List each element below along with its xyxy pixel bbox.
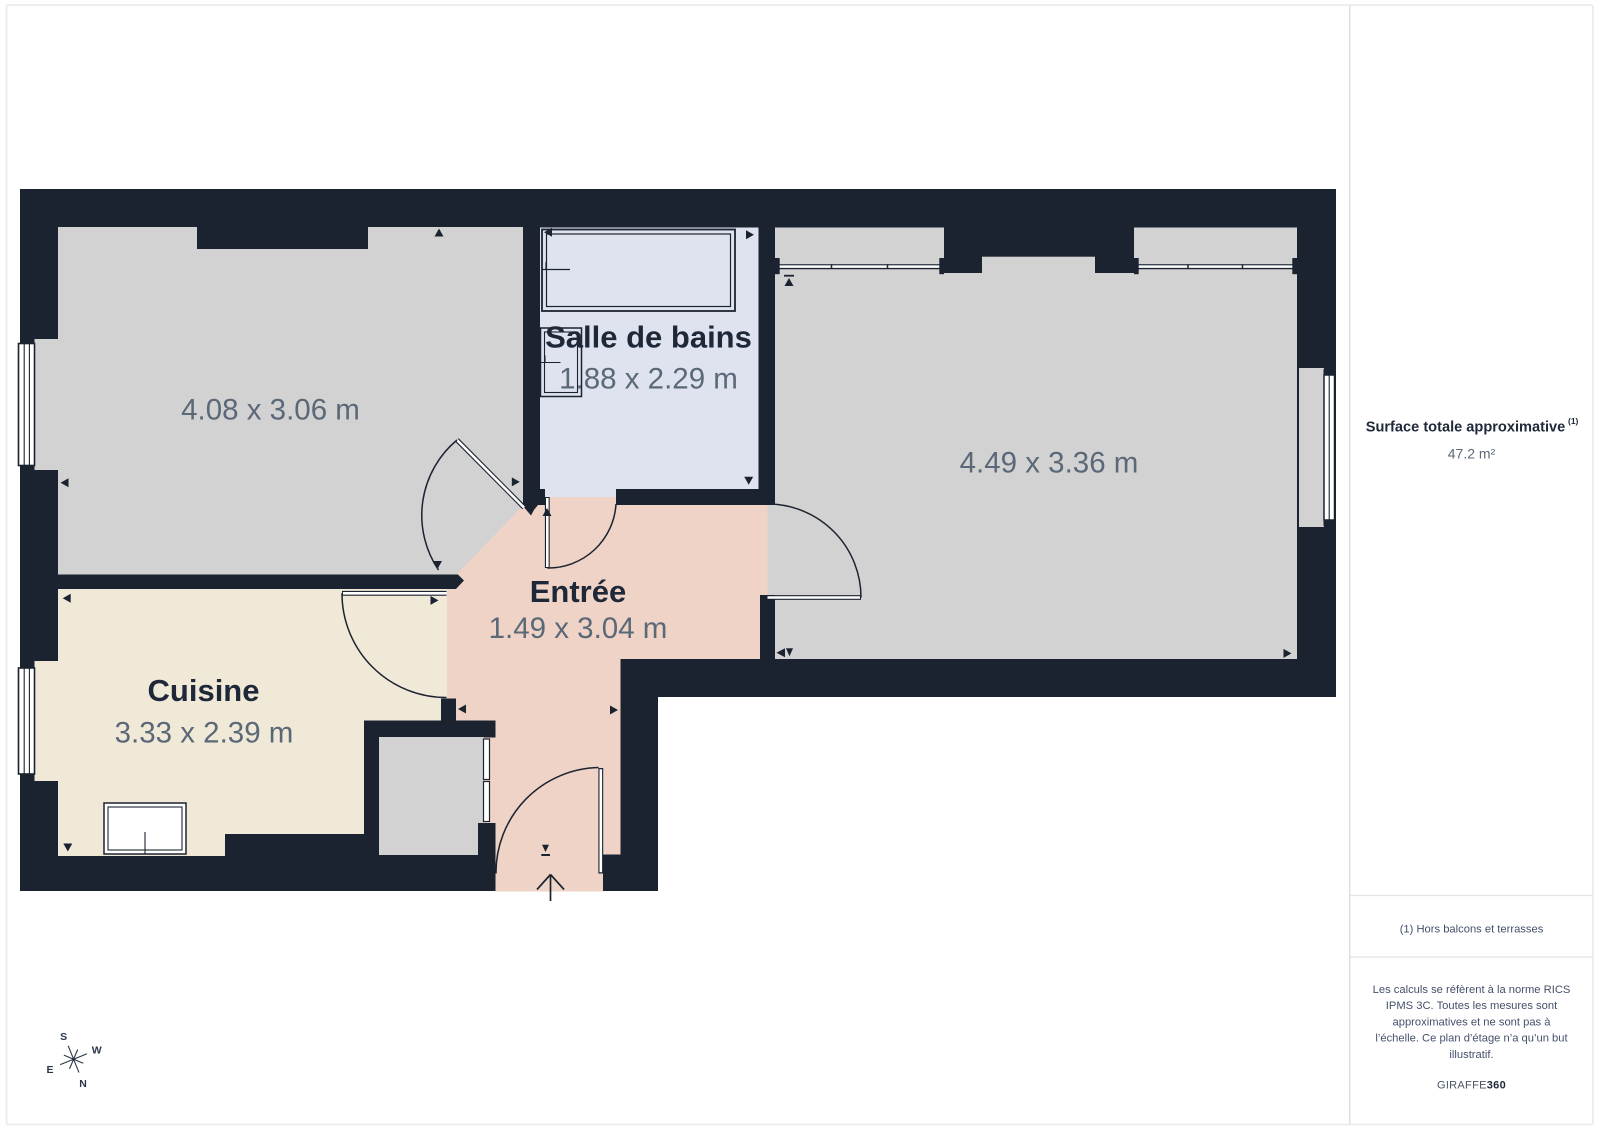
svg-text:47.2 m²: 47.2 m²: [1448, 446, 1496, 462]
svg-text:N: N: [79, 1078, 87, 1090]
svg-text:W: W: [92, 1045, 102, 1057]
svg-text:Surface totale approximative: Surface totale approximative: [1366, 420, 1566, 436]
svg-text:1.88 x 2.29 m: 1.88 x 2.29 m: [559, 363, 738, 396]
svg-text:Cuisine: Cuisine: [148, 673, 260, 708]
svg-text:Salle de bains: Salle de bains: [545, 320, 752, 355]
svg-text:1.49 x 3.04 m: 1.49 x 3.04 m: [489, 612, 668, 645]
svg-text:(1): (1): [1568, 416, 1579, 426]
svg-text:Entrée: Entrée: [530, 574, 626, 609]
svg-text:GIRAFFE360: GIRAFFE360: [1437, 1079, 1506, 1091]
svg-text:4.08 x 3.06 m: 4.08 x 3.06 m: [181, 394, 360, 427]
svg-text:3.33 x 2.39 m: 3.33 x 2.39 m: [115, 717, 294, 750]
svg-text:illustratif.: illustratif.: [1449, 1049, 1493, 1061]
svg-text:(1) Hors balcons et terrasses: (1) Hors balcons et terrasses: [1400, 924, 1544, 936]
svg-text:IPMS 3C. Toutes les mesures so: IPMS 3C. Toutes les mesures sont: [1386, 1000, 1558, 1012]
svg-text:S: S: [60, 1031, 67, 1043]
svg-text:E: E: [46, 1064, 53, 1076]
svg-text:Les calculs se réfèrent à la n: Les calculs se réfèrent à la norme RICS: [1373, 984, 1571, 996]
svg-text:approximatives et ne sont pas: approximatives et ne sont pas à: [1393, 1016, 1552, 1028]
svg-text:4.49 x 3.36 m: 4.49 x 3.36 m: [960, 447, 1139, 480]
svg-text:l’échelle. Ce plan d’étage n’a: l’échelle. Ce plan d’étage n’a qu’un but: [1375, 1033, 1568, 1045]
